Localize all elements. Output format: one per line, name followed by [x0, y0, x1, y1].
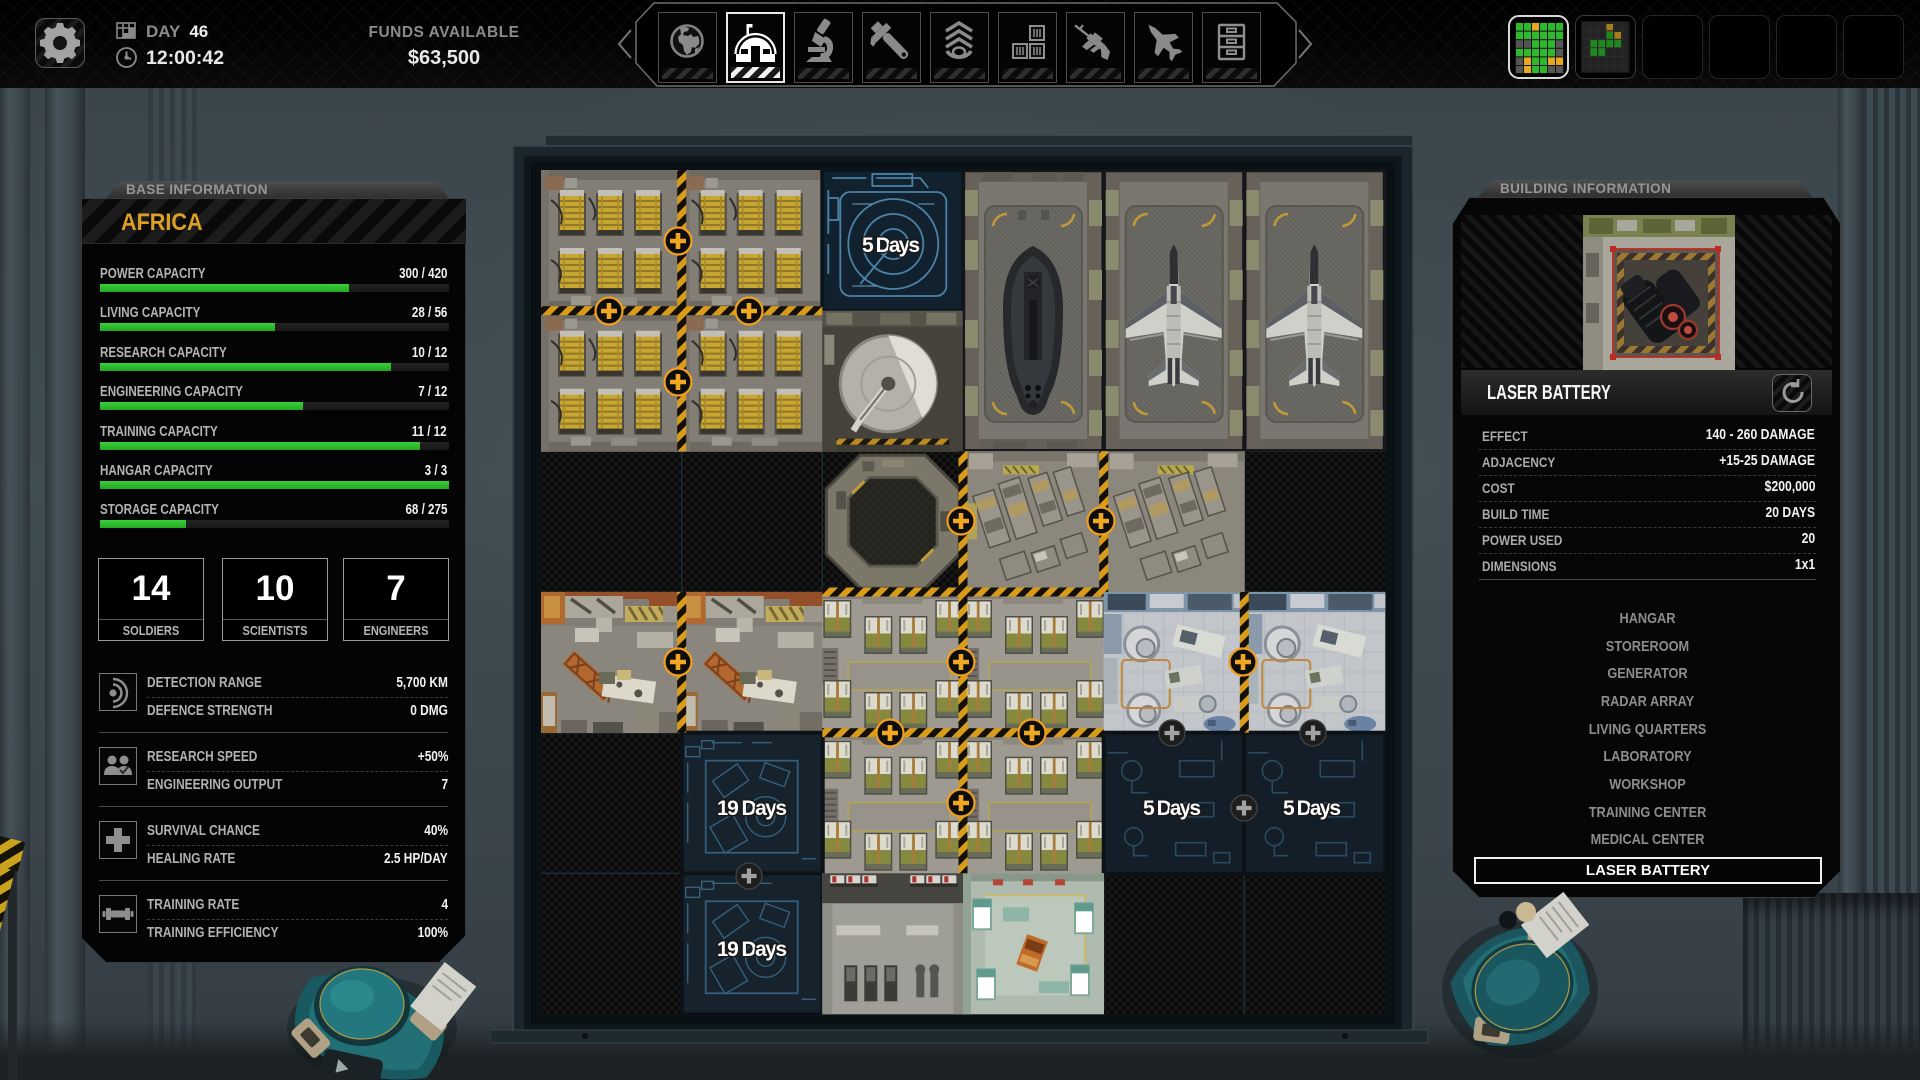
svg-text:19 Days: 19 Days [717, 797, 787, 820]
svg-text:5 Days: 5 Days [1283, 797, 1341, 820]
svg-text:5 Days: 5 Days [862, 234, 920, 257]
svg-text:19 Days: 19 Days [717, 938, 787, 961]
svg-text:5 Days: 5 Days [1143, 797, 1201, 820]
